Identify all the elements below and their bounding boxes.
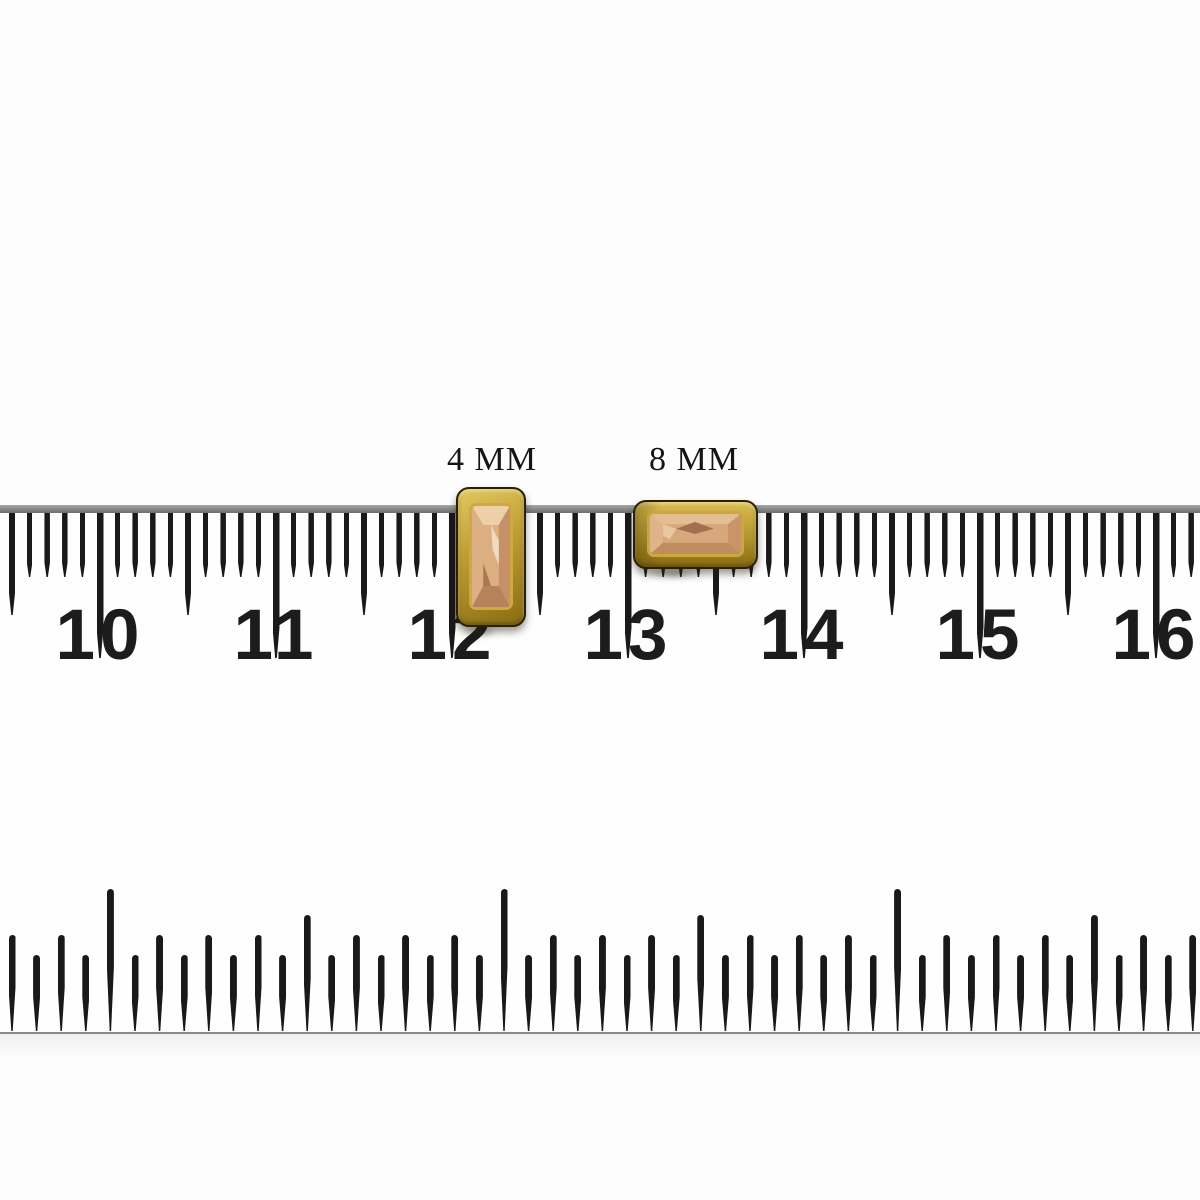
mm-tick <box>907 506 913 577</box>
mm-tick <box>203 506 209 577</box>
mm-tick <box>238 506 244 577</box>
cm-tick <box>449 506 456 658</box>
cm-tick <box>97 506 104 658</box>
mm-tick <box>1188 506 1194 577</box>
mm-tick <box>220 506 226 577</box>
mm-tick <box>1083 506 1089 577</box>
cm-tick <box>1153 506 1160 658</box>
mm-tick <box>1136 506 1142 577</box>
mm-tick <box>344 506 350 577</box>
photo-scene: 10111213141516 4 MM 8 MM <box>0 0 1200 1200</box>
cm-tick <box>977 506 984 658</box>
cm-tick <box>273 506 280 658</box>
mm-tick <box>379 506 385 577</box>
mm-tick <box>308 506 314 577</box>
mm-tick <box>1118 506 1124 577</box>
mm-tick <box>44 506 50 577</box>
mm-tick <box>27 506 33 577</box>
mm-tick <box>326 506 332 577</box>
mm-tick <box>396 506 402 577</box>
mm-tick <box>942 506 948 577</box>
mm-tick <box>784 506 790 577</box>
mm-tick <box>168 506 174 577</box>
mm-tick <box>572 506 578 577</box>
size-label-8mm: 8 MM <box>649 443 739 477</box>
half-cm-tick <box>889 506 895 615</box>
mm-tick <box>590 506 596 577</box>
mm-tick <box>1012 506 1018 577</box>
mm-tick <box>432 506 438 577</box>
mm-tick <box>115 506 121 577</box>
mm-tick <box>80 506 86 577</box>
size-label-4mm: 4 MM <box>447 443 537 477</box>
mm-tick <box>1100 506 1106 577</box>
ruler-bottom-edge <box>0 1032 1200 1034</box>
mm-tick <box>1048 506 1054 577</box>
mm-tick <box>414 506 420 577</box>
half-cm-tick <box>1065 506 1071 615</box>
mm-tick <box>836 506 842 577</box>
mm-tick <box>995 506 1001 577</box>
mm-tick <box>872 506 878 577</box>
charm-8mm-stone <box>650 514 741 554</box>
half-cm-tick <box>537 506 543 615</box>
mm-tick <box>150 506 156 577</box>
charm-4mm-stone <box>472 506 510 607</box>
mm-tick <box>608 506 614 577</box>
mm-tick <box>819 506 825 577</box>
half-cm-tick <box>9 506 15 615</box>
charm-4mm-bezel-window <box>469 503 513 610</box>
charm-8mm <box>633 500 758 569</box>
mm-tick <box>555 506 561 577</box>
cm-tick <box>801 506 808 658</box>
charm-8mm-bezel-window <box>647 511 744 557</box>
mm-tick <box>924 506 930 577</box>
mm-tick <box>1171 506 1177 577</box>
mm-tick <box>766 506 772 577</box>
mm-tick <box>1030 506 1036 577</box>
half-cm-tick <box>185 506 191 615</box>
cm-tick <box>625 506 632 658</box>
mm-tick <box>132 506 138 577</box>
mm-tick <box>256 506 262 577</box>
mm-tick <box>960 506 966 577</box>
mm-tick <box>62 506 68 577</box>
half-cm-tick <box>361 506 367 615</box>
mm-tick <box>854 506 860 577</box>
ruler-top-edge <box>0 505 1200 513</box>
charm-4mm <box>456 487 526 627</box>
mm-tick <box>291 506 297 577</box>
